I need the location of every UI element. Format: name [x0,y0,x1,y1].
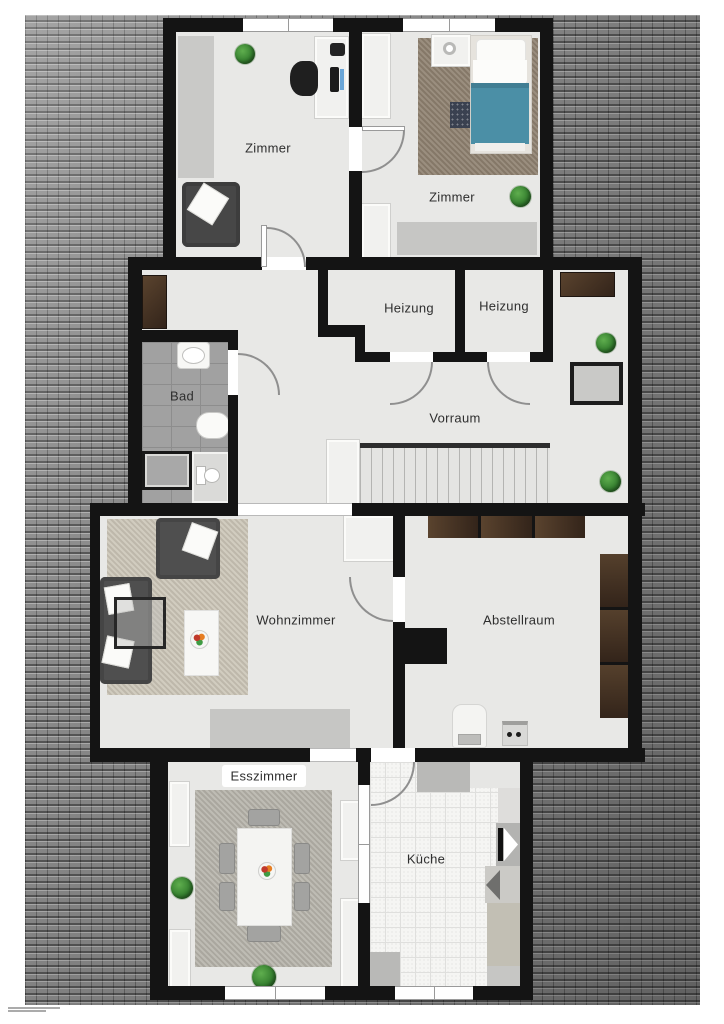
plant-icon [171,877,193,899]
fruit-bowl-icon [190,630,209,649]
wall [90,503,100,762]
chair-icon [248,809,280,826]
wardrobe-icon [178,36,214,178]
washer-icon [502,721,528,746]
door-opening [349,127,362,171]
cabinet [362,204,390,264]
room-label-zimmer-right: Zimmer [429,190,475,205]
room-label-bad: Bad [170,389,194,404]
plant-icon [596,333,616,353]
kitchen-counter-icon [487,966,520,986]
door-opening [390,352,433,362]
wall [163,18,176,270]
lamp-icon [443,42,456,55]
wall [543,270,553,362]
wall [358,762,370,785]
room-label-esszimmer: Esszimmer [231,769,298,784]
door-opening [371,748,415,762]
shower-icon [142,451,192,490]
office-chair-icon [290,61,318,96]
wall [318,325,365,337]
wall [520,762,533,1000]
framed-box [570,362,623,405]
chair-icon [219,843,235,874]
cabinet [344,516,396,561]
watermark-smudge [8,1010,46,1012]
stairs-icon [360,443,550,510]
watermark-smudge [8,1007,60,1009]
sliding-door-opening [238,503,352,516]
door-opening [228,350,238,395]
wall [358,903,370,986]
kitchen-counter-icon [498,788,520,823]
radiator [170,930,190,988]
room-label-kueche: Küche [407,852,445,867]
room-label-abstellraum: Abstellraum [483,613,555,628]
chimney-block [405,628,447,664]
room-label-wohnzimmer: Wohnzimmer [256,613,335,628]
toilet-bowl [204,468,220,483]
wall [628,257,642,516]
sink-basin [182,347,205,364]
wall [628,503,642,762]
kitchen-mat [417,762,470,792]
sideboard-icon [210,709,350,748]
door-opening [310,748,356,762]
kitchen-counter-icon [487,903,520,966]
monitor-icon [330,67,339,92]
wall [90,503,645,516]
wall [349,171,362,257]
chair-icon [294,882,310,911]
floorplan-canvas: Zimmer Zimmer Heizung Heizung Bad Vorrau… [0,0,724,1024]
plant-icon [510,186,531,207]
kitchen-counter-icon [470,762,520,788]
wall [393,622,405,748]
chair-icon [294,843,310,874]
bench-icon [560,272,615,297]
wall [150,986,533,1000]
wall [540,18,553,270]
bed-blanket [471,83,529,144]
window-icon [243,18,333,32]
plant-icon [235,44,255,64]
washer-knob [516,732,521,737]
washer-knob [507,732,512,737]
oven-door [498,828,503,861]
chair-icon [219,882,235,911]
dark-mat [450,102,472,128]
wall [318,270,328,325]
chair-icon [247,925,281,942]
window-icon [358,785,370,903]
monitor-stand-icon [340,69,344,90]
shelf-icon [600,554,628,718]
fruit-bowl-icon [258,862,276,880]
kitchen-mat [370,952,400,986]
wall [128,257,642,270]
bed-sheet [473,60,527,84]
door-opening [393,577,405,622]
cabinet [362,34,390,118]
room-label-zimmer-left: Zimmer [245,141,291,156]
bed-footboard [475,143,525,151]
door-opening [487,352,530,362]
desk-camera-icon [330,43,345,56]
esszimmer-label-banner: Esszimmer [222,765,306,787]
bedroom-rug [397,222,537,255]
wall [393,516,405,577]
wall [90,748,645,762]
bench-icon [142,275,167,329]
room-label-heizung-right: Heizung [479,299,529,314]
wall [150,762,168,1000]
window-icon [403,18,495,32]
wall [128,257,142,516]
shelf-icon [428,513,585,538]
radiator [170,782,189,846]
window-icon [225,986,325,1000]
plant-icon [600,471,621,492]
wall [455,270,465,362]
wall [349,32,362,127]
coffee-table-icon [114,597,166,649]
boiler-panel [458,734,481,745]
room-label-vorraum: Vorraum [429,411,480,426]
wall [128,330,238,342]
room-label-heizung-left: Heizung [384,301,434,316]
window-icon [395,986,473,1000]
cabinet [327,440,359,507]
bathtub-icon [196,412,230,439]
